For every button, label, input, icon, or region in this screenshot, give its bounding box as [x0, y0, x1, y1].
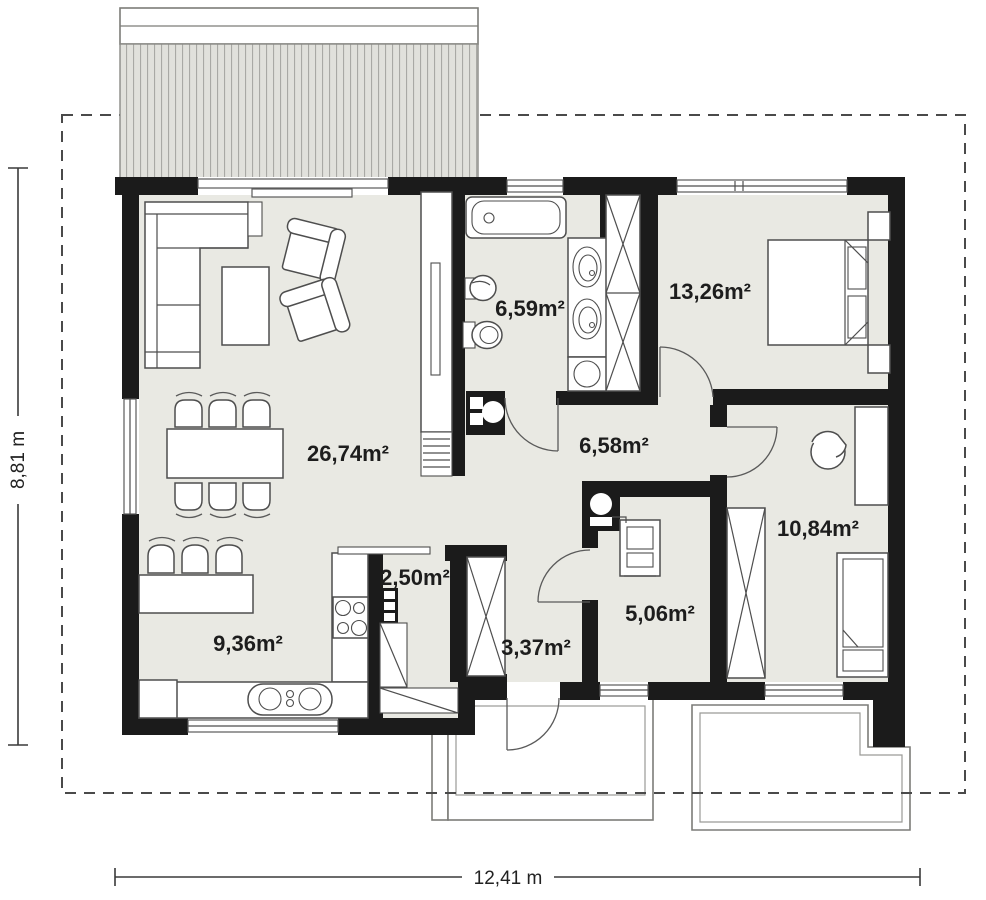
wardrobe: [727, 508, 765, 678]
label-kitchen: 9,36m²: [213, 631, 283, 656]
kitchen-counter-top: [338, 547, 430, 554]
bidet: [465, 276, 496, 301]
dining-table: [167, 429, 283, 478]
bedroom-child-window: [765, 682, 843, 700]
bathroom-window: [507, 177, 563, 195]
label-living-room: 26,74m²: [307, 441, 389, 466]
nightstand: [868, 345, 890, 373]
floor-plan-page: 26,74m² 6,59m² 13,26m² 6,58m² 10,84m² 2,…: [0, 0, 986, 900]
dining-table-set: [167, 393, 283, 518]
double-bed: [768, 240, 868, 345]
kitchen-base-cabinet: [139, 680, 177, 718]
label-entry-hall: 3,37m²: [501, 635, 571, 660]
toilet: [463, 322, 502, 349]
bathtub: [466, 197, 566, 238]
coffee-table: [222, 267, 269, 345]
dimension-height-text: 8,81 m: [8, 431, 29, 489]
label-bedroom-child: 10,84m²: [777, 516, 859, 541]
label-hall: 6,58m²: [579, 433, 649, 458]
built-in-wardrobe: [606, 195, 640, 391]
tv-cabinet: [421, 192, 452, 476]
bar-counter: [139, 575, 253, 613]
pantry-closet: [380, 623, 407, 687]
hall-sink-unit: [466, 391, 505, 435]
washing-machine: [568, 357, 607, 391]
front-terrace: [120, 8, 478, 181]
pantry-low-cabinet: [380, 688, 458, 713]
entry-wardrobe: [467, 557, 505, 676]
dimension-width: 12,41 m: [115, 864, 920, 889]
bedroom-main-window: [677, 177, 847, 195]
vanity-double-sink: [568, 238, 607, 357]
breakfast-bar: [139, 538, 253, 614]
dimension-width-text: 12,41 m: [474, 868, 543, 889]
water-heater-unit: [582, 481, 620, 531]
living-side-window: [122, 399, 139, 514]
nightstand: [868, 212, 890, 240]
terrace-sliding-door: [198, 177, 388, 197]
pantry-shelves: [381, 588, 398, 623]
label-utility: 5,06m²: [625, 601, 695, 626]
desk: [855, 407, 888, 505]
label-bedroom-main: 13,26m²: [669, 279, 751, 304]
floor-plan-svg: 26,74m² 6,59m² 13,26m² 6,58m² 10,84m² 2,…: [0, 0, 986, 900]
label-pantry: 2,50m²: [380, 565, 450, 590]
entrance-door-opening: [507, 682, 560, 700]
dimension-height: 8,81 m: [6, 168, 31, 745]
kitchen-sink: [248, 684, 332, 715]
label-bathroom: 6,59m²: [495, 296, 565, 321]
stove: [333, 597, 368, 638]
utility-window: [600, 682, 648, 700]
single-bed: [837, 553, 888, 677]
